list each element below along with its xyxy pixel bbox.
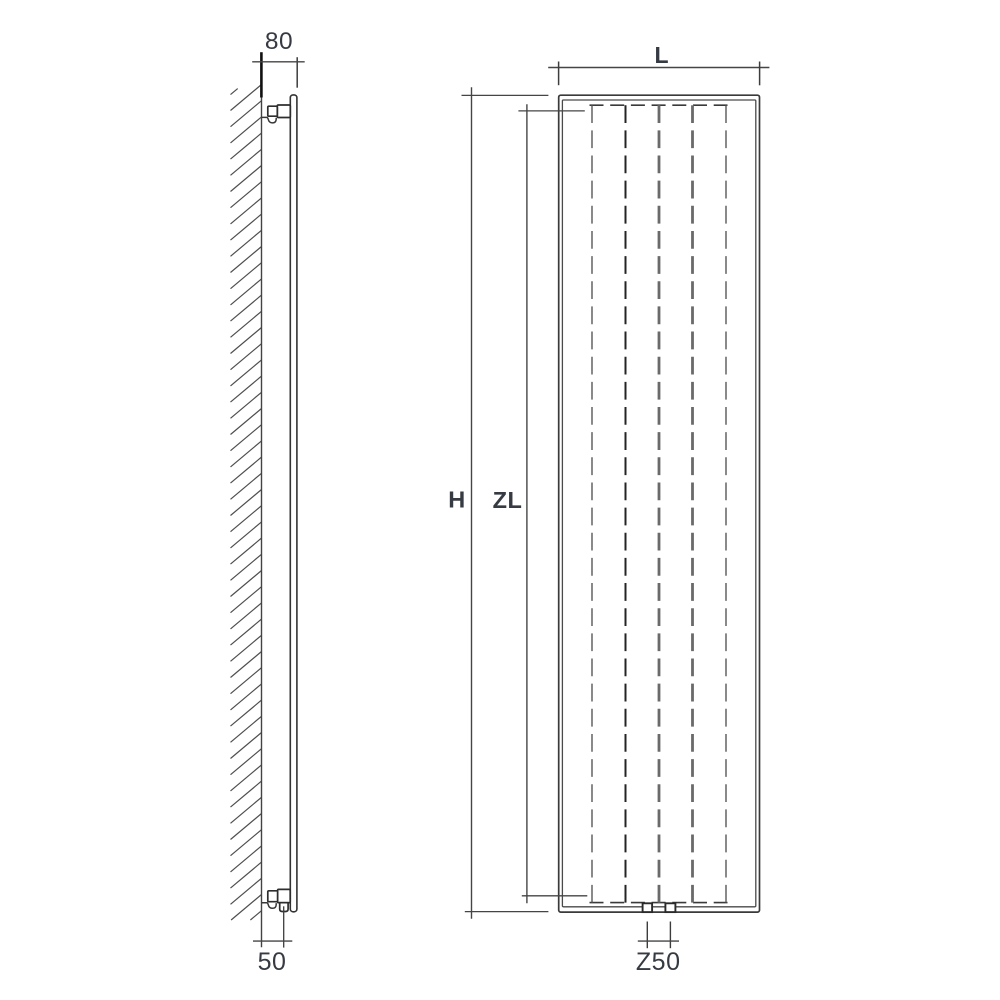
svg-text:50: 50 [258, 948, 287, 976]
svg-text:80: 80 [265, 28, 293, 55]
svg-text:Z50: Z50 [636, 948, 681, 976]
svg-text:ZL: ZL [493, 487, 523, 513]
svg-text:H: H [448, 487, 465, 513]
svg-text:L: L [654, 42, 668, 68]
